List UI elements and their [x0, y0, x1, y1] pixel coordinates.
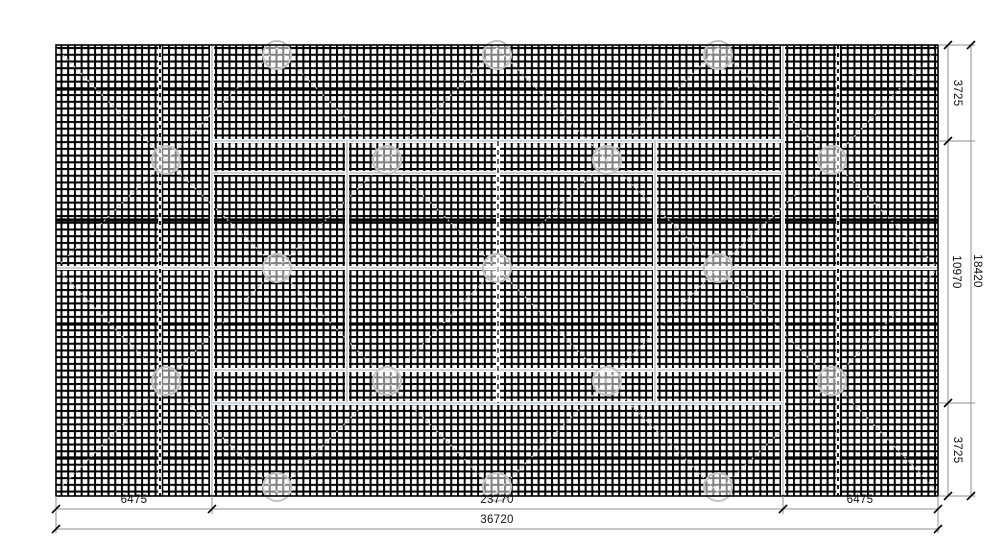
- anchor-circle: [373, 367, 401, 395]
- anchor-circle: [593, 146, 621, 174]
- dim-right-bottom-label: 3725: [951, 437, 963, 464]
- dim-bottom-middle-label: 23770: [457, 494, 537, 506]
- dim-right-top-label: 3725: [951, 80, 963, 107]
- anchor-circle: [818, 367, 846, 395]
- anchor-circle: [593, 367, 621, 395]
- dim-right-total-label: 18420: [971, 254, 983, 287]
- dim-right-middle-label: 10970: [950, 255, 962, 288]
- anchor-circle: [704, 254, 732, 282]
- dim-bottom-total-label: 36720: [457, 514, 537, 526]
- panel-drawing-canvas: 6475 23770 6475 36720 3725 10970 3725 18…: [0, 0, 1000, 560]
- anchor-circle: [373, 146, 401, 174]
- panel-drawing-svg: [0, 0, 1000, 560]
- anchor-circle: [152, 146, 180, 174]
- anchor-circle: [483, 254, 511, 282]
- anchor-circle: [818, 146, 846, 174]
- dim-bottom-right-label: 6475: [820, 494, 900, 506]
- anchor-circle: [263, 254, 291, 282]
- dim-bottom-left-label: 6475: [94, 494, 174, 506]
- anchor-circle: [152, 367, 180, 395]
